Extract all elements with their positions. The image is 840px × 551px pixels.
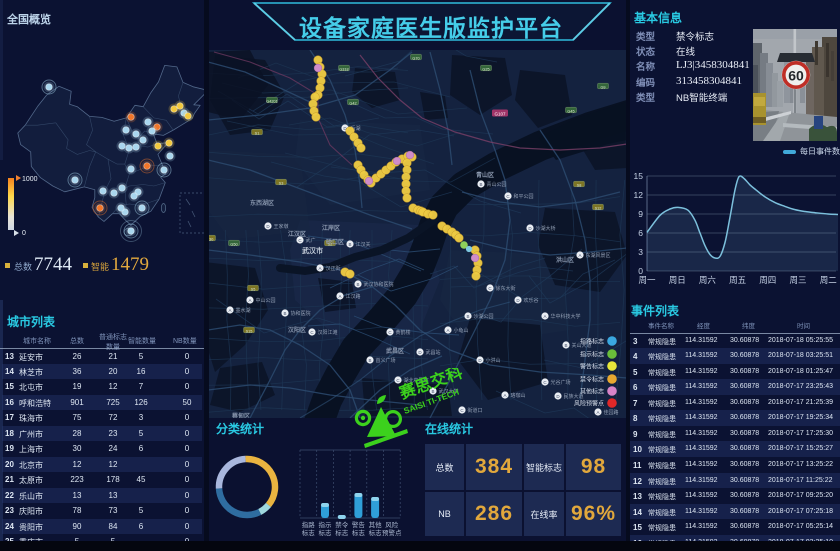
svg-text:周一: 周一 <box>638 275 656 285</box>
svg-text:指路标志: 指路标志 <box>580 338 604 346</box>
svg-text:A: A <box>543 314 546 319</box>
svg-text:B: B <box>466 314 469 319</box>
svg-text:A: A <box>338 294 341 299</box>
svg-text:标志: 标志 <box>335 528 349 537</box>
svg-text:周日: 周日 <box>669 275 686 285</box>
svg-text:武汉市: 武汉市 <box>302 246 323 255</box>
svg-text:60: 60 <box>788 68 804 84</box>
svg-text:禁令: 禁令 <box>335 520 349 529</box>
svg-text:警告标志: 警告标志 <box>580 363 604 371</box>
svg-text:A: A <box>503 393 506 398</box>
svg-text:江岸区: 江岸区 <box>322 224 340 232</box>
svg-text:禁令标志: 禁令标志 <box>580 376 604 384</box>
svg-text:江汉路: 江汉路 <box>346 293 361 300</box>
svg-text:武汉协和医院: 武汉协和医院 <box>364 281 394 288</box>
svg-text:S5: S5 <box>251 287 256 291</box>
svg-text:12: 12 <box>634 190 644 200</box>
svg-text:和平公园: 和平公园 <box>514 193 534 200</box>
svg-text:3: 3 <box>638 247 643 257</box>
svg-text:洪山区: 洪山区 <box>556 256 574 264</box>
svg-text:东西湖区: 东西湖区 <box>250 199 274 207</box>
svg-text:珞珈山: 珞珈山 <box>511 392 526 399</box>
svg-text:周三: 周三 <box>789 275 806 285</box>
svg-text:B: B <box>368 358 371 363</box>
svg-text:周五: 周五 <box>729 275 747 285</box>
svg-text:预警点: 预警点 <box>382 528 402 537</box>
svg-text:标志: 标志 <box>369 528 383 537</box>
svg-text:首义广场: 首义广场 <box>376 357 396 364</box>
svg-text:15: 15 <box>634 171 644 181</box>
svg-text:江汉区: 江汉区 <box>288 230 306 238</box>
svg-text:光谷广场: 光谷广场 <box>551 379 571 386</box>
svg-text:1000: 1000 <box>22 176 38 183</box>
svg-text:黄鹤楼: 黄鹤楼 <box>396 329 411 336</box>
svg-text:汉阳江滩: 汉阳江滩 <box>318 329 338 336</box>
svg-text:A: A <box>596 410 599 415</box>
svg-text:佳园路: 佳园路 <box>604 409 619 416</box>
svg-text:周二: 周二 <box>820 275 838 285</box>
svg-text:G25: G25 <box>482 67 489 71</box>
svg-text:0: 0 <box>22 230 26 237</box>
svg-text:A: A <box>318 266 321 271</box>
svg-text:B: B <box>356 282 359 287</box>
svg-text:G45: G45 <box>567 109 574 113</box>
svg-text:9: 9 <box>638 209 643 219</box>
svg-text:欢乐谷: 欢乐谷 <box>524 297 539 304</box>
svg-text:G42: G42 <box>349 101 356 105</box>
svg-text:A: A <box>248 298 251 303</box>
svg-text:武昌区: 武昌区 <box>386 347 404 355</box>
svg-text:B: B <box>479 182 482 187</box>
svg-text:王家墩: 王家墩 <box>274 223 289 230</box>
svg-text:B: B <box>348 242 351 247</box>
svg-text:G70: G70 <box>412 56 419 60</box>
svg-text:江汉关: 江汉关 <box>356 241 371 248</box>
svg-text:标志: 标志 <box>302 528 316 537</box>
svg-text:小洪山: 小洪山 <box>486 357 501 364</box>
svg-text:S3: S3 <box>279 181 284 185</box>
svg-text:风险预警点: 风险预警点 <box>574 400 604 408</box>
svg-text:S1: S1 <box>255 131 260 135</box>
svg-text:标志: 标志 <box>319 528 333 537</box>
svg-text:华中科技大学: 华中科技大学 <box>551 313 581 320</box>
svg-text:其他: 其他 <box>369 520 383 529</box>
svg-text:A: A <box>228 308 231 313</box>
svg-text:青山区: 青山区 <box>476 171 494 179</box>
svg-text:G50: G50 <box>230 242 237 246</box>
svg-text:标志: 标志 <box>352 528 366 537</box>
svg-text:小龟山: 小龟山 <box>454 327 469 334</box>
svg-text:武广: 武广 <box>306 237 316 244</box>
svg-text:A: A <box>446 328 449 333</box>
svg-text:6: 6 <box>638 228 643 238</box>
svg-text:汉正街: 汉正街 <box>326 265 341 272</box>
svg-text:G107: G107 <box>494 111 506 116</box>
svg-text:硚口区: 硚口区 <box>326 238 344 246</box>
svg-text:B: B <box>564 343 567 348</box>
svg-text:B: B <box>283 311 286 316</box>
svg-text:墨水湖: 墨水湖 <box>236 307 251 314</box>
svg-text:指示: 指示 <box>319 520 333 529</box>
svg-text:G9: G9 <box>600 85 605 89</box>
svg-text:协和医院: 协和医院 <box>291 310 311 317</box>
svg-text:S12: S12 <box>595 206 602 210</box>
svg-text:周六: 周六 <box>699 275 717 285</box>
svg-text:S15: S15 <box>246 329 253 333</box>
svg-text:G4201: G4201 <box>266 99 277 103</box>
svg-text:指示标志: 指示标志 <box>580 351 604 359</box>
svg-text:A: A <box>578 253 581 258</box>
svg-text:东湖风景区: 东湖风景区 <box>586 252 611 259</box>
svg-text:徐东大街: 徐东大街 <box>496 285 516 292</box>
svg-text:青山公园: 青山公园 <box>487 181 507 188</box>
svg-text:中山公园: 中山公园 <box>256 297 276 304</box>
svg-text:其他标志: 其他标志 <box>580 388 604 396</box>
svg-text:G318: G318 <box>339 67 348 71</box>
svg-text:沙湖大桥: 沙湖大桥 <box>536 225 556 232</box>
svg-text:武昌站: 武昌站 <box>426 349 441 356</box>
svg-text:汉阳区: 汉阳区 <box>288 326 306 334</box>
svg-text:周四: 周四 <box>759 275 776 285</box>
svg-text:S8: S8 <box>577 183 582 187</box>
svg-text:警告: 警告 <box>352 520 366 529</box>
svg-text:指路: 指路 <box>302 520 316 529</box>
svg-text:沙湖公园: 沙湖公园 <box>474 313 494 320</box>
svg-text:风险: 风险 <box>385 520 399 529</box>
